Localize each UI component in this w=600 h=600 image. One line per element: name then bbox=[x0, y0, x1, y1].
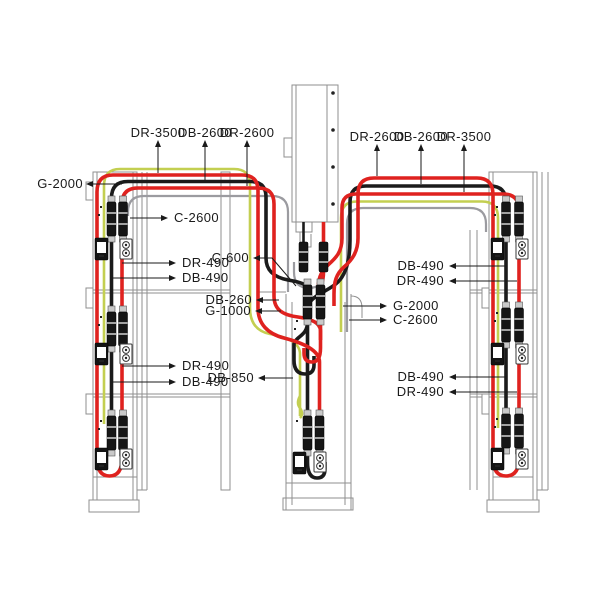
label-dr-490: DR-490 bbox=[397, 273, 444, 288]
detail-dot bbox=[494, 214, 496, 216]
wiring-diagram-canvas: DR-3500 DB-2600 DR-2600 DR-2600 DB-2600 … bbox=[0, 0, 600, 600]
arrow-up-icon bbox=[374, 144, 380, 151]
right-rack-hinge-tab bbox=[482, 288, 489, 308]
detail-dot bbox=[494, 426, 496, 428]
label-g-1000: G-1000 bbox=[205, 303, 251, 318]
wiring-diagram-page: DR-3500 DB-2600 DR-2600 DR-2600 DB-2600 … bbox=[0, 0, 600, 600]
center-unit bbox=[284, 85, 338, 247]
indicator-circles bbox=[314, 452, 326, 472]
detail-dot bbox=[100, 206, 102, 208]
detail-dot bbox=[294, 328, 296, 330]
arrow-right-icon bbox=[169, 260, 176, 266]
callout-db490-lower-right: DB-490 bbox=[398, 369, 506, 384]
arrow-right-icon bbox=[161, 215, 168, 221]
detail-dot bbox=[98, 214, 100, 216]
detail-dot bbox=[100, 420, 102, 422]
relay-box bbox=[491, 448, 504, 470]
left-rack-hinge-tab bbox=[86, 394, 93, 414]
arrow-up-icon bbox=[418, 144, 424, 151]
indicator-circles bbox=[120, 449, 132, 469]
arrow-up-icon bbox=[202, 140, 208, 147]
center-unit-body bbox=[292, 85, 338, 222]
cable-connector bbox=[319, 242, 328, 272]
cable-connector bbox=[303, 410, 312, 456]
right-rack-components bbox=[491, 196, 528, 470]
label-c-600: C-600 bbox=[212, 250, 249, 265]
callout-g2000-center: G-2000 bbox=[343, 298, 439, 313]
callout-c2600-left: C-2600 bbox=[130, 210, 219, 225]
center-column-base bbox=[283, 498, 353, 510]
label-db-490: DB-490 bbox=[182, 270, 228, 285]
cable-connector bbox=[502, 408, 511, 454]
label-dr-490: DR-490 bbox=[397, 384, 444, 399]
detail-dot bbox=[296, 320, 298, 322]
arrow-right-icon bbox=[380, 317, 387, 323]
screw-dot bbox=[331, 202, 335, 206]
screw-dot bbox=[331, 165, 335, 169]
arrow-right-icon bbox=[169, 379, 176, 385]
label-db-850: DB-850 bbox=[208, 370, 254, 385]
indicator-circles bbox=[120, 344, 132, 364]
arrow-up-icon bbox=[244, 140, 250, 147]
cable-connector bbox=[515, 408, 524, 454]
detail-dot bbox=[496, 312, 498, 314]
cable-connector bbox=[107, 306, 116, 352]
arrow-right-icon bbox=[169, 363, 176, 369]
right-rack-hinge-tab bbox=[482, 394, 489, 414]
left-rack-side-panel bbox=[221, 172, 230, 490]
label-c-2600: C-2600 bbox=[174, 210, 219, 225]
arrow-left-icon bbox=[449, 374, 456, 380]
callout-dr3500-top-right: DR-3500 bbox=[437, 129, 492, 192]
label-db-490: DB-490 bbox=[398, 258, 444, 273]
detail-dot bbox=[100, 316, 102, 318]
detail-dot bbox=[496, 418, 498, 420]
detail-dot bbox=[296, 420, 298, 422]
arrow-up-icon bbox=[155, 140, 161, 147]
callouts: DR-3500 DB-2600 DR-2600 DR-2600 DB-2600 … bbox=[37, 125, 517, 399]
relay-box bbox=[491, 343, 504, 365]
arrow-left-icon bbox=[449, 263, 456, 269]
arrow-left-icon bbox=[449, 389, 456, 395]
cable-connector bbox=[316, 279, 325, 325]
callout-g2000-left: G-2000 bbox=[37, 176, 122, 191]
relay-box bbox=[293, 452, 306, 474]
cable-connector bbox=[303, 279, 312, 325]
arrow-right-icon bbox=[169, 275, 176, 281]
cable-connector bbox=[515, 302, 524, 348]
label-g-2000: G-2000 bbox=[393, 298, 439, 313]
indicator-circles bbox=[516, 344, 528, 364]
arrow-left-icon bbox=[449, 278, 456, 284]
left-rack-base bbox=[89, 500, 139, 512]
indicator-circles bbox=[516, 239, 528, 259]
right-rack-base bbox=[487, 500, 539, 512]
screw-dot bbox=[331, 91, 335, 95]
cable-connector bbox=[299, 242, 308, 272]
arrow-up-icon bbox=[461, 144, 467, 151]
detail-dot bbox=[98, 324, 100, 326]
center-column-corner bbox=[351, 296, 362, 318]
label-c-2600: C-2600 bbox=[393, 312, 438, 327]
label-g-2000: G-2000 bbox=[37, 176, 83, 191]
cable-connector bbox=[502, 196, 511, 242]
indicator-circles bbox=[120, 239, 132, 259]
label-dr-3500: DR-3500 bbox=[437, 129, 492, 144]
cable-connector bbox=[107, 410, 116, 456]
label-dr-2600: DR-2600 bbox=[220, 125, 275, 140]
cable-connector bbox=[107, 196, 116, 242]
relay-box bbox=[95, 448, 108, 470]
center-unit-bracket bbox=[284, 138, 292, 157]
arrow-left-icon bbox=[258, 375, 265, 381]
relay-box bbox=[95, 343, 108, 365]
callout-db490-upper-left: DB-490 bbox=[112, 270, 228, 285]
cable-connector bbox=[119, 196, 128, 242]
callout-dr2600-top-left: DR-2600 bbox=[220, 125, 275, 186]
cable-connector bbox=[502, 302, 511, 348]
screw-dot bbox=[331, 128, 335, 132]
relay-box bbox=[491, 238, 504, 260]
left-rack-components bbox=[95, 196, 132, 470]
cable-connector bbox=[515, 196, 524, 242]
callout-g1000: G-1000 bbox=[205, 303, 281, 318]
left-rack-hinge-tab bbox=[86, 288, 93, 308]
label-db-490: DB-490 bbox=[398, 369, 444, 384]
cable-connector bbox=[315, 410, 324, 456]
detail-dot bbox=[496, 206, 498, 208]
indicator-circles bbox=[516, 449, 528, 469]
detail-dot bbox=[494, 320, 496, 322]
callout-db850: DB-850 bbox=[208, 370, 293, 385]
relay-box bbox=[95, 238, 108, 260]
detail-dot bbox=[98, 428, 100, 430]
arrow-right-icon bbox=[380, 303, 387, 309]
